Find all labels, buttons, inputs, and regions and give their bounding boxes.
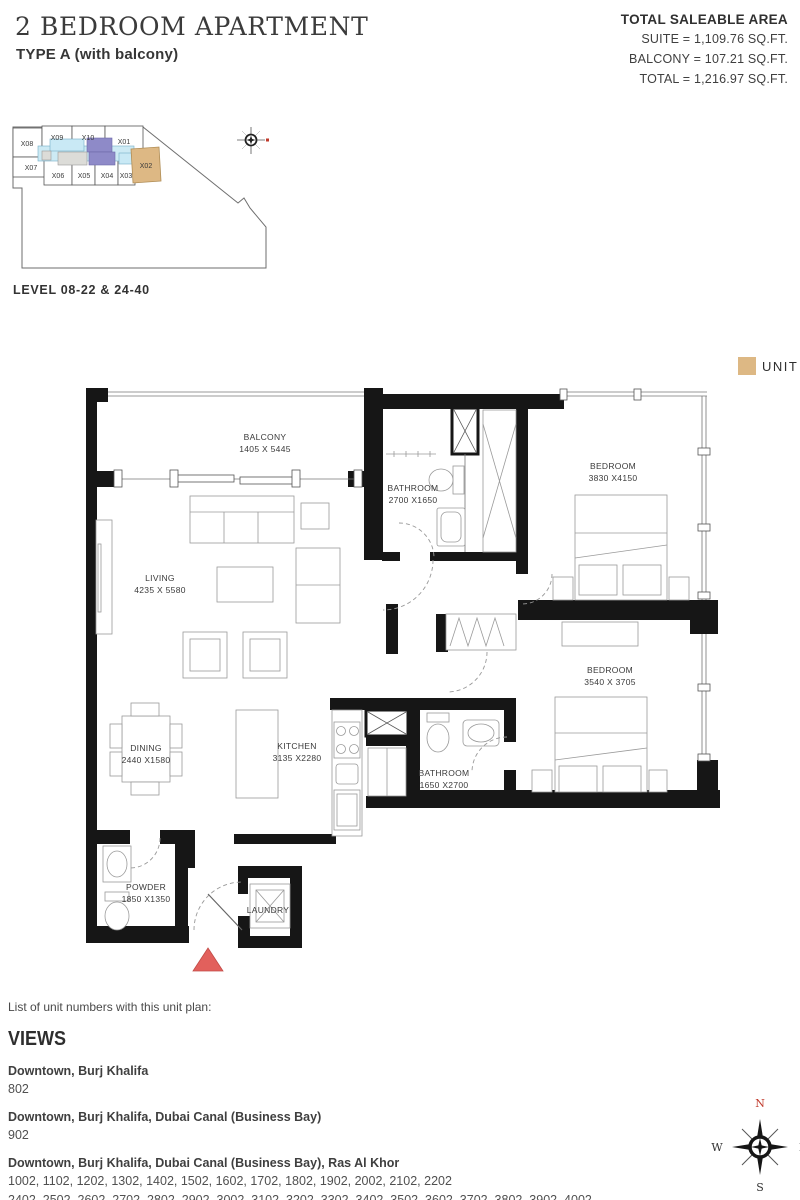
room-label-bedroom-1: BEDROOM — [590, 461, 636, 471]
keyplan-label-x06: X06 — [52, 173, 65, 180]
page-subtitle: TYPE A (with balcony) — [16, 46, 178, 63]
room-label-balcony: BALCONY — [244, 432, 287, 442]
entrance-marker-icon — [193, 948, 223, 971]
room-dims-dining: 2440 X1580 — [122, 755, 171, 765]
view-group: Downtown, Burj Khalifa, Dubai Canal (Bus… — [8, 1110, 788, 1143]
compass-west-label: W — [711, 1141, 723, 1154]
compass-south-label: S — [756, 1181, 764, 1194]
kitchen-sink — [336, 764, 358, 784]
toilet — [427, 713, 449, 722]
room-dims-living: 4235 X 5580 — [134, 585, 186, 595]
room-label-bedroom-2: BEDROOM — [587, 665, 633, 675]
room-label-laundry: LAUNDRY — [247, 905, 290, 915]
saleable-area-heading: TOTAL SALEABLE AREA — [621, 12, 788, 27]
unit-list-intro: List of unit numbers with this unit plan… — [8, 1000, 788, 1014]
nightstand — [669, 577, 689, 600]
view-group-name: Downtown, Burj Khalifa, Dubai Canal (Bus… — [8, 1110, 788, 1124]
room-dims-powder: 1850 X1350 — [122, 894, 171, 904]
view-group-name: Downtown, Burj Khalifa, Dubai Canal (Bus… — [8, 1156, 788, 1170]
compass-rose-icon: N W E S — [705, 1085, 800, 1195]
saleable-suite: SUITE = 1,109.76 SQ.FT. — [621, 32, 788, 47]
keyplan-label-x09: X09 — [51, 135, 64, 142]
view-group-units: 2402, 2502, 2602, 2702, 2802, 2902, 3002… — [8, 1192, 788, 1200]
core-block-gray — [58, 152, 87, 165]
saleable-balcony: BALCONY = 107.21 SQ.FT. — [621, 52, 788, 67]
view-group-units: 902 — [8, 1127, 788, 1143]
keyplan-diagram: X08 X09 X10 X01 X07 X06 X05 X04 X03 X02 — [0, 115, 280, 290]
saleable-area-block: TOTAL SALEABLE AREA SUITE = 1,109.76 SQ.… — [621, 12, 788, 87]
views-heading: VIEWS — [8, 1028, 710, 1051]
keyplan-label-x01: X01 — [118, 139, 131, 146]
view-group-units: 1002, 1102, 1202, 1302, 1402, 1502, 1602… — [8, 1173, 788, 1189]
keyplan-compass-icon — [237, 127, 269, 154]
side-table — [301, 503, 329, 529]
room-label-powder: POWDER — [126, 882, 166, 892]
nightstand — [553, 577, 573, 600]
floorplan-page: 2 BEDROOM APARTMENT TYPE A (with balcony… — [0, 0, 800, 1200]
keyplan-label-x03: X03 — [120, 173, 133, 180]
view-group-name: Downtown, Burj Khalifa — [8, 1064, 788, 1078]
armchair — [296, 548, 340, 623]
nightstand — [532, 770, 552, 792]
view-group: Downtown, Burj Khalifa, Dubai Canal (Bus… — [8, 1156, 788, 1200]
room-dims-bedroom-1: 3830 X4150 — [589, 473, 638, 483]
keyplan-label-x07: X07 — [25, 165, 38, 172]
room-dims-balcony: 1405 X 5445 — [239, 444, 291, 454]
room-label-dining: DINING — [130, 743, 162, 753]
hall-closet — [446, 614, 516, 650]
view-group: Downtown, Burj Khalifa 802 — [8, 1064, 788, 1097]
keyplan-label-x05: X05 — [78, 173, 91, 180]
room-label-bathroom-1: BATHROOM — [388, 483, 439, 493]
coffee-table — [217, 567, 273, 602]
views-section: List of unit numbers with this unit plan… — [8, 1000, 788, 1200]
core-block-purple-2 — [89, 152, 115, 165]
room-label-living: LIVING — [145, 573, 175, 583]
level-label: LEVEL 08-22 & 24-40 — [13, 283, 150, 297]
core-block-gray-small — [42, 151, 51, 160]
room-dims-bathroom-1: 2700 X1650 — [389, 495, 438, 505]
keyplan-label-x04: X04 — [101, 173, 114, 180]
room-dims-kitchen: 3135 X2280 — [273, 753, 322, 763]
floorplan-drawing: BALCONY 1405 X 5445 LIVING 4235 X 5580 B… — [0, 340, 800, 990]
toilet — [453, 466, 464, 494]
room-label-bathroom-2: BATHROOM — [419, 768, 470, 778]
sofa — [190, 496, 294, 543]
keyplan-label-x02: X02 — [140, 163, 153, 170]
room-label-kitchen: KITCHEN — [277, 741, 316, 751]
entry-door-leaf — [208, 894, 242, 930]
keyplan-label-x08: X08 — [21, 141, 34, 148]
page-title: 2 BEDROOM APARTMENT — [15, 12, 368, 41]
room-dims-bedroom-2: 3540 X 3705 — [584, 677, 636, 687]
room-dims-bathroom-2: 1650 X2700 — [420, 780, 469, 790]
saleable-total: TOTAL = 1,216.97 SQ.FT. — [621, 72, 788, 87]
dresser — [562, 622, 638, 646]
nightstand — [649, 770, 667, 792]
view-group-units: 802 — [8, 1081, 788, 1097]
keyplan-label-x10: X10 — [82, 135, 95, 142]
compass-north-label: N — [755, 1097, 765, 1110]
